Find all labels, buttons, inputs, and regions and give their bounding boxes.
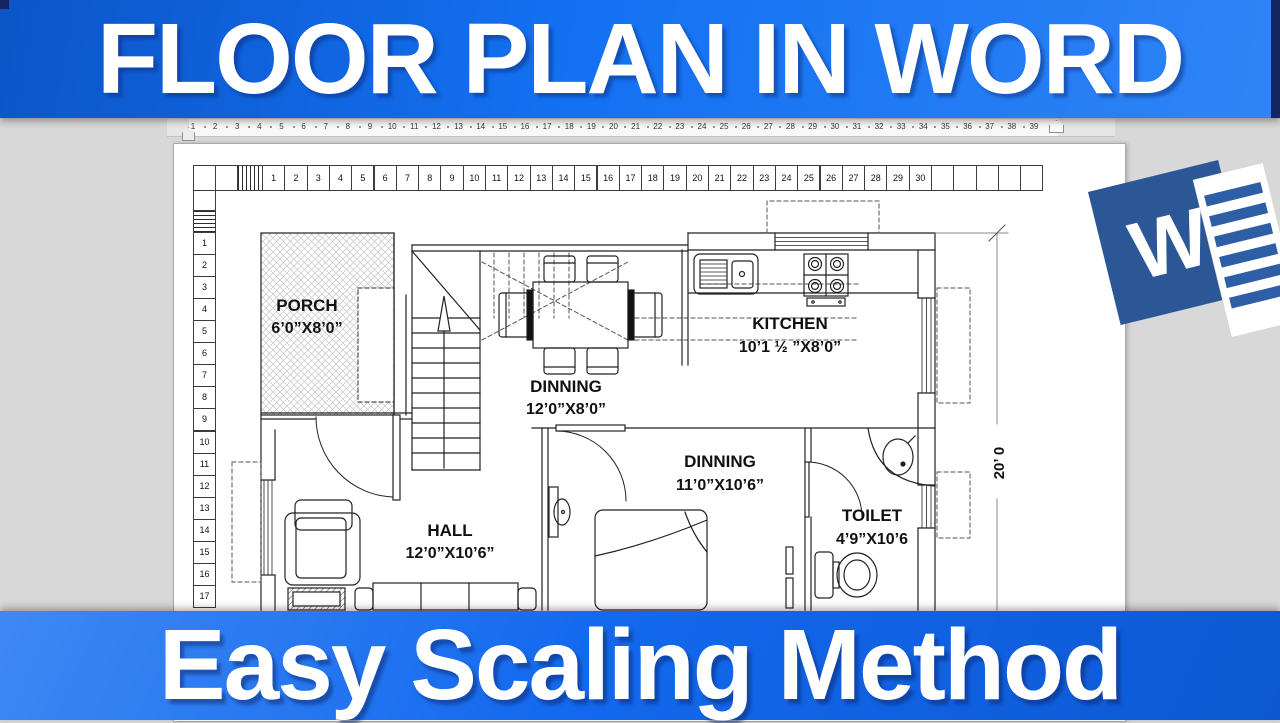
ruler-number: 26	[738, 122, 754, 131]
ruler-number: 29	[805, 122, 821, 131]
ruler-number: 21	[628, 122, 644, 131]
ruler-number: 15	[495, 122, 511, 131]
ruler-number: 34	[915, 122, 931, 131]
ruler-number: 18	[561, 122, 577, 131]
ruler-tick	[315, 126, 317, 128]
ruler-number: 5	[274, 122, 290, 131]
ruler-number: 38	[1004, 122, 1020, 131]
ruler-number: 25	[716, 122, 732, 131]
ruler-tick	[293, 126, 295, 128]
bottom-banner: Easy Scaling Method	[0, 611, 1280, 720]
ruler-number: 19	[583, 122, 599, 131]
ruler-number: 6	[296, 122, 312, 131]
ruler-number: 11	[406, 122, 422, 131]
ruler-number: 7	[318, 122, 334, 131]
ruler-number: 1	[185, 122, 201, 131]
banner-corner-decoration	[0, 0, 9, 9]
ruler-tick	[824, 126, 826, 128]
banner-edge-decoration	[1271, 0, 1280, 118]
ruler-number: 10	[384, 122, 400, 131]
ruler-tick	[204, 126, 206, 128]
ruler-tick	[691, 126, 693, 128]
ruler-tick	[713, 126, 715, 128]
ruler-number: 37	[982, 122, 998, 131]
ruler-tick	[890, 126, 892, 128]
ruler-tick	[1001, 126, 1003, 128]
ruler-number: 28	[783, 122, 799, 131]
ruler-tick	[979, 126, 981, 128]
ruler-number: 8	[340, 122, 356, 131]
ruler-number: 2	[207, 122, 223, 131]
top-banner-title: FLOOR PLAN IN WORD	[97, 2, 1183, 117]
ruler-tick	[669, 126, 671, 128]
ruler-number: 12	[428, 122, 444, 131]
ruler-number: 16	[517, 122, 533, 131]
ruler-number: 32	[871, 122, 887, 131]
ruler-number: 33	[893, 122, 909, 131]
top-banner: FLOOR PLAN IN WORD	[0, 0, 1280, 118]
ruler-number: 36	[960, 122, 976, 131]
ruler-number: 31	[849, 122, 865, 131]
ruler-number: 35	[937, 122, 953, 131]
ruler-number: 9	[362, 122, 378, 131]
ruler-tick	[1023, 126, 1025, 128]
ruler-number: 17	[539, 122, 555, 131]
ruler-number: 27	[760, 122, 776, 131]
ruler-tick	[381, 126, 383, 128]
ruler-tick	[359, 126, 361, 128]
ruler-number: 13	[451, 122, 467, 131]
ruler-tick	[802, 126, 804, 128]
ruler-tick	[846, 126, 848, 128]
ruler-number: 24	[694, 122, 710, 131]
ruler-number: 30	[827, 122, 843, 131]
ruler-number: 23	[672, 122, 688, 131]
ruler-number: 20	[605, 122, 621, 131]
ruler-tick	[470, 126, 472, 128]
ruler-tick	[868, 126, 870, 128]
ruler-number: 3	[229, 122, 245, 131]
ruler-number: 22	[650, 122, 666, 131]
ruler-tick	[647, 126, 649, 128]
ruler-number: 4	[251, 122, 267, 131]
ruler-number: 39	[1026, 122, 1042, 131]
ruler-tick	[492, 126, 494, 128]
ruler-tick	[514, 126, 516, 128]
ruler-tick	[536, 126, 538, 128]
ruler-number: 14	[473, 122, 489, 131]
ruler-tick	[337, 126, 339, 128]
bottom-banner-title: Easy Scaling Method	[159, 608, 1121, 723]
